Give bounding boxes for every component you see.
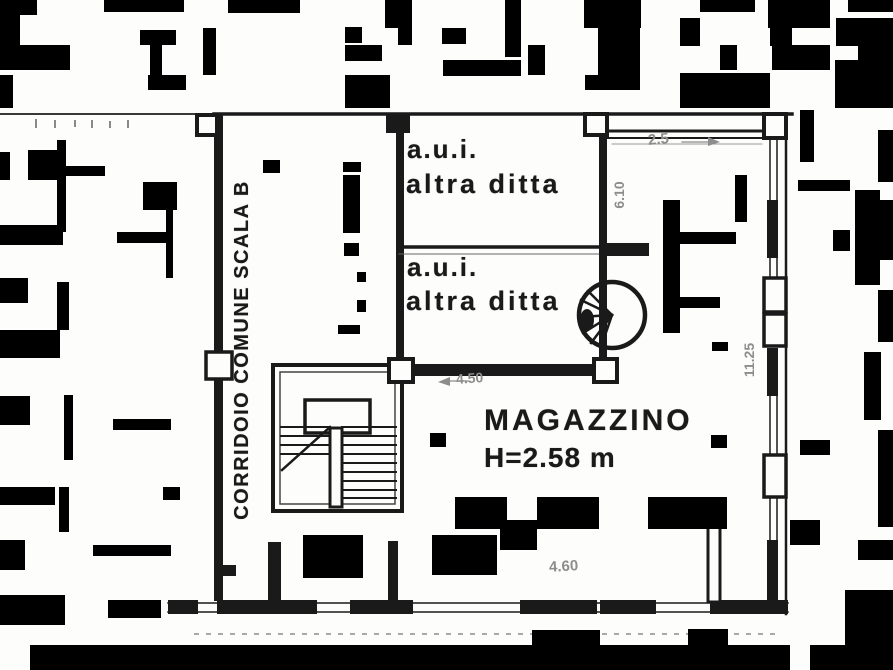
scan-artifact [800,110,814,162]
scan-artifact [0,278,28,303]
scan-artifact [505,0,521,57]
scan-artifact [800,440,830,455]
scan-artifact [57,140,66,232]
scan-artifact [345,75,390,108]
scan-artifact [108,600,161,618]
scan-artifact [798,180,850,191]
scan-artifact [345,45,382,61]
scan-artifact [864,352,881,420]
scan-artifact [343,162,361,172]
scan-artifact [228,0,300,13]
dim-inner-vertical: 6.10 [612,165,628,225]
scan-artifact [113,419,171,430]
scan-artifact [57,282,69,330]
scan-artifact [0,15,20,45]
scan-artifact [720,45,737,70]
scan-artifact [768,0,830,28]
room1-ditta-label: altra ditta [406,171,561,198]
scan-artifact [0,540,25,570]
scan-artifact [0,595,65,625]
scan-artifact [104,0,184,12]
scan-artifact [357,272,366,282]
scan-artifact [203,28,216,75]
scan-artifact [59,487,69,532]
scan-artifact [303,535,363,578]
scan-artifact [648,497,727,529]
scan-artifact [810,645,893,670]
dim-room2-width: 4.50 [456,370,484,386]
scan-artifact [711,435,727,448]
scan-artifact [858,540,893,560]
scan-artifact [163,487,180,500]
magazzino-label: MAGAZZINO [484,406,693,436]
scan-artifact [584,0,641,28]
scan-artifact [537,497,599,529]
room2-aui-label: a.u.i. [407,254,478,280]
scan-artifact [770,28,792,46]
scan-artifact [688,629,728,646]
scan-artifact [700,0,755,12]
scan-artifact [263,160,280,173]
scan-artifact [845,590,893,645]
dim-bottom-width: 4.60 [549,558,579,575]
scan-artifact [398,12,412,45]
scan-artifact [878,130,893,182]
scan-artifact [344,243,359,256]
scan-artifact [166,186,173,278]
scan-artifact [878,290,893,342]
scan-artifact [140,30,176,45]
scan-artifact [430,433,446,447]
scan-artifact [343,175,360,233]
dim-right-height: 11.25 [742,325,758,395]
scan-artifact [432,535,497,575]
scan-artifact [598,28,640,75]
scan-artifact [0,0,37,15]
magazzino-height-label: H=2.58 m [484,444,616,472]
corridor-label: CORRIDOIO COMUNE SCALA B [232,150,258,550]
scan-artifact [150,45,162,75]
scan-artifact [0,75,13,108]
scan-artifact [117,232,172,243]
dim-top-right: 2.5 [647,131,669,148]
scan-artifact [848,0,893,12]
room2-ditta-label: altra ditta [406,288,561,315]
scan-artifact [680,297,720,308]
floorplan-scan: CORRIDOIO COMUNE SCALA B a.u.i. altra di… [0,0,893,670]
room1-aui-label: a.u.i. [407,136,478,162]
scan-artifact [443,60,521,76]
scan-artifact [878,200,893,260]
scan-artifact [836,18,893,46]
scan-artifact [663,200,680,333]
scan-artifact [712,342,728,351]
scan-artifact [680,232,736,244]
scan-artifact [0,330,60,358]
scan-artifact [0,45,70,70]
scan-artifact [532,630,600,662]
scan-artifact [0,225,63,245]
scan-artifact [30,645,790,670]
scan-artifact [0,152,10,180]
scan-artifact [585,75,640,90]
scan-artifact [64,395,73,460]
scan-artifact [93,545,171,556]
scan-artifact [357,300,366,312]
scan-artifact [0,487,55,505]
scan-artifact [0,396,30,425]
scan-artifact [338,325,360,334]
scan-artifact [345,27,362,43]
scan-artifact [528,45,545,75]
scan-artifact [835,60,893,108]
scan-artifact [148,75,186,90]
scan-artifact [833,230,850,251]
scan-artifact [878,430,893,488]
scan-artifact [680,18,700,46]
scan-artifact [772,45,830,70]
scan-artifact [735,175,747,222]
scan-artifact [680,73,770,108]
scan-artifact [878,487,893,527]
scan-artifact [855,190,880,285]
scan-artifact [500,520,537,550]
scan-artifact [790,520,820,545]
scan-artifact [442,28,466,44]
